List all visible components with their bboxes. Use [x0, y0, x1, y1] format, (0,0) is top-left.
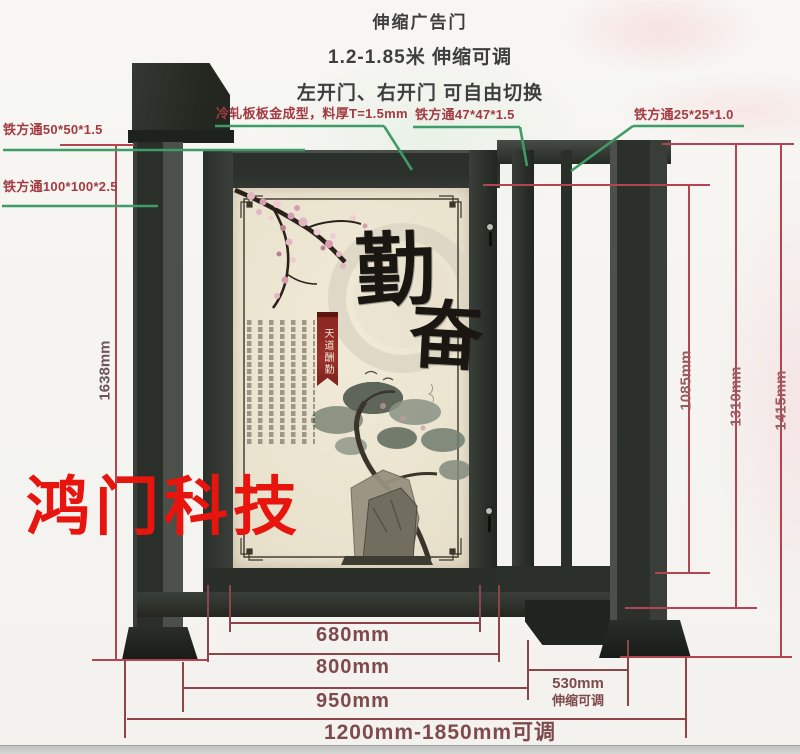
product-title: 伸缩广告门 — [240, 8, 600, 33]
gate-product-diagram: 伸缩广告门 1.2-1.85米 伸缩可调 左开门、右开门 可自由切换 — [0, 0, 800, 754]
left-post — [133, 142, 183, 628]
birds — [365, 372, 393, 385]
rail-end-block — [525, 600, 612, 645]
left-post-base — [122, 627, 198, 660]
door-top-rail — [203, 150, 500, 188]
dim-total-width-range: 1200mm-1850mm可调 — [300, 716, 580, 746]
right-post — [610, 140, 667, 625]
calligraphy-fen: 奋 — [407, 298, 485, 376]
bonsai-rock-painting — [311, 382, 469, 565]
dim-telescopic: 530mm 伸缩可调 — [533, 675, 623, 709]
vertical-poem-columns — [247, 320, 315, 444]
lower-lock-knob — [486, 508, 492, 514]
callout-tube-47: 铁方通47*47*1.5 — [415, 104, 515, 123]
product-range: 1.2-1.85米 伸缩可调 — [240, 42, 600, 69]
callout-cold-rolled: 冷轧板板金成型，料厚T=1.5mm — [216, 103, 408, 122]
seal-ribbon: 天道酬勤 — [317, 312, 338, 386]
dim-door-width: 800mm — [298, 656, 408, 679]
header-text-block: 伸缩广告门 1.2-1.85米 伸缩可调 左开门、右开门 可自由切换 — [240, 8, 600, 105]
dim-frame-height: 1310mm — [728, 352, 745, 442]
dim-post-height: 1415mm — [773, 356, 790, 446]
watermark-text: 鸿门科技 — [26, 456, 302, 548]
door-bottom-rail — [203, 568, 497, 593]
dim-total-height: 1638mm — [97, 326, 114, 416]
dim-panel-width: 680mm — [298, 624, 408, 647]
dim-inner-height: 1085mm — [678, 336, 695, 426]
callout-tube-100: 铁方通100*100*2.5 — [3, 176, 118, 195]
signature-mark — [429, 384, 434, 402]
callout-tube-50: 铁方通50*50*1.5 — [3, 119, 103, 138]
telescopic-bar-25 — [561, 150, 572, 592]
floor-strip — [0, 745, 800, 754]
dim-telescopic-note: 伸缩可调 — [533, 692, 623, 709]
telescopic-bar-47 — [512, 150, 534, 592]
callout-tube-25: 铁方通25*25*1.0 — [634, 104, 734, 123]
product-note: 左开门、右开门 可自由切换 — [240, 78, 600, 105]
dim-telescopic-value: 530mm — [533, 675, 623, 692]
upper-lock-knob — [487, 224, 493, 230]
upper-lock-slot — [489, 232, 492, 246]
right-post-base — [599, 620, 691, 658]
dim-door-section-width: 950mm — [298, 690, 408, 713]
lower-lock-slot — [488, 516, 491, 532]
